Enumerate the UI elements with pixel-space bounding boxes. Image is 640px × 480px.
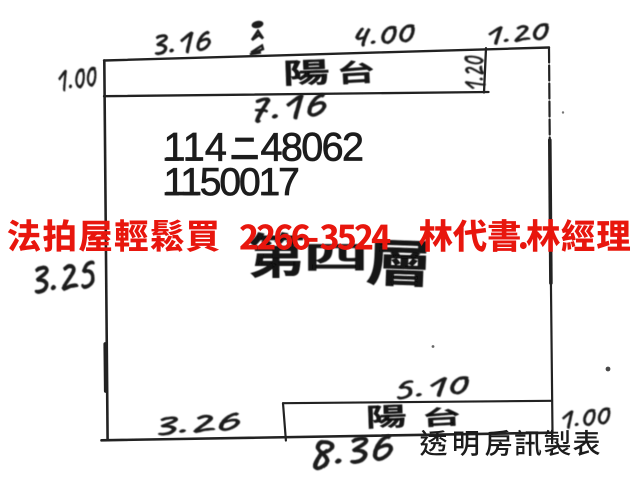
svg-text:1150017: 1150017 (164, 161, 299, 204)
